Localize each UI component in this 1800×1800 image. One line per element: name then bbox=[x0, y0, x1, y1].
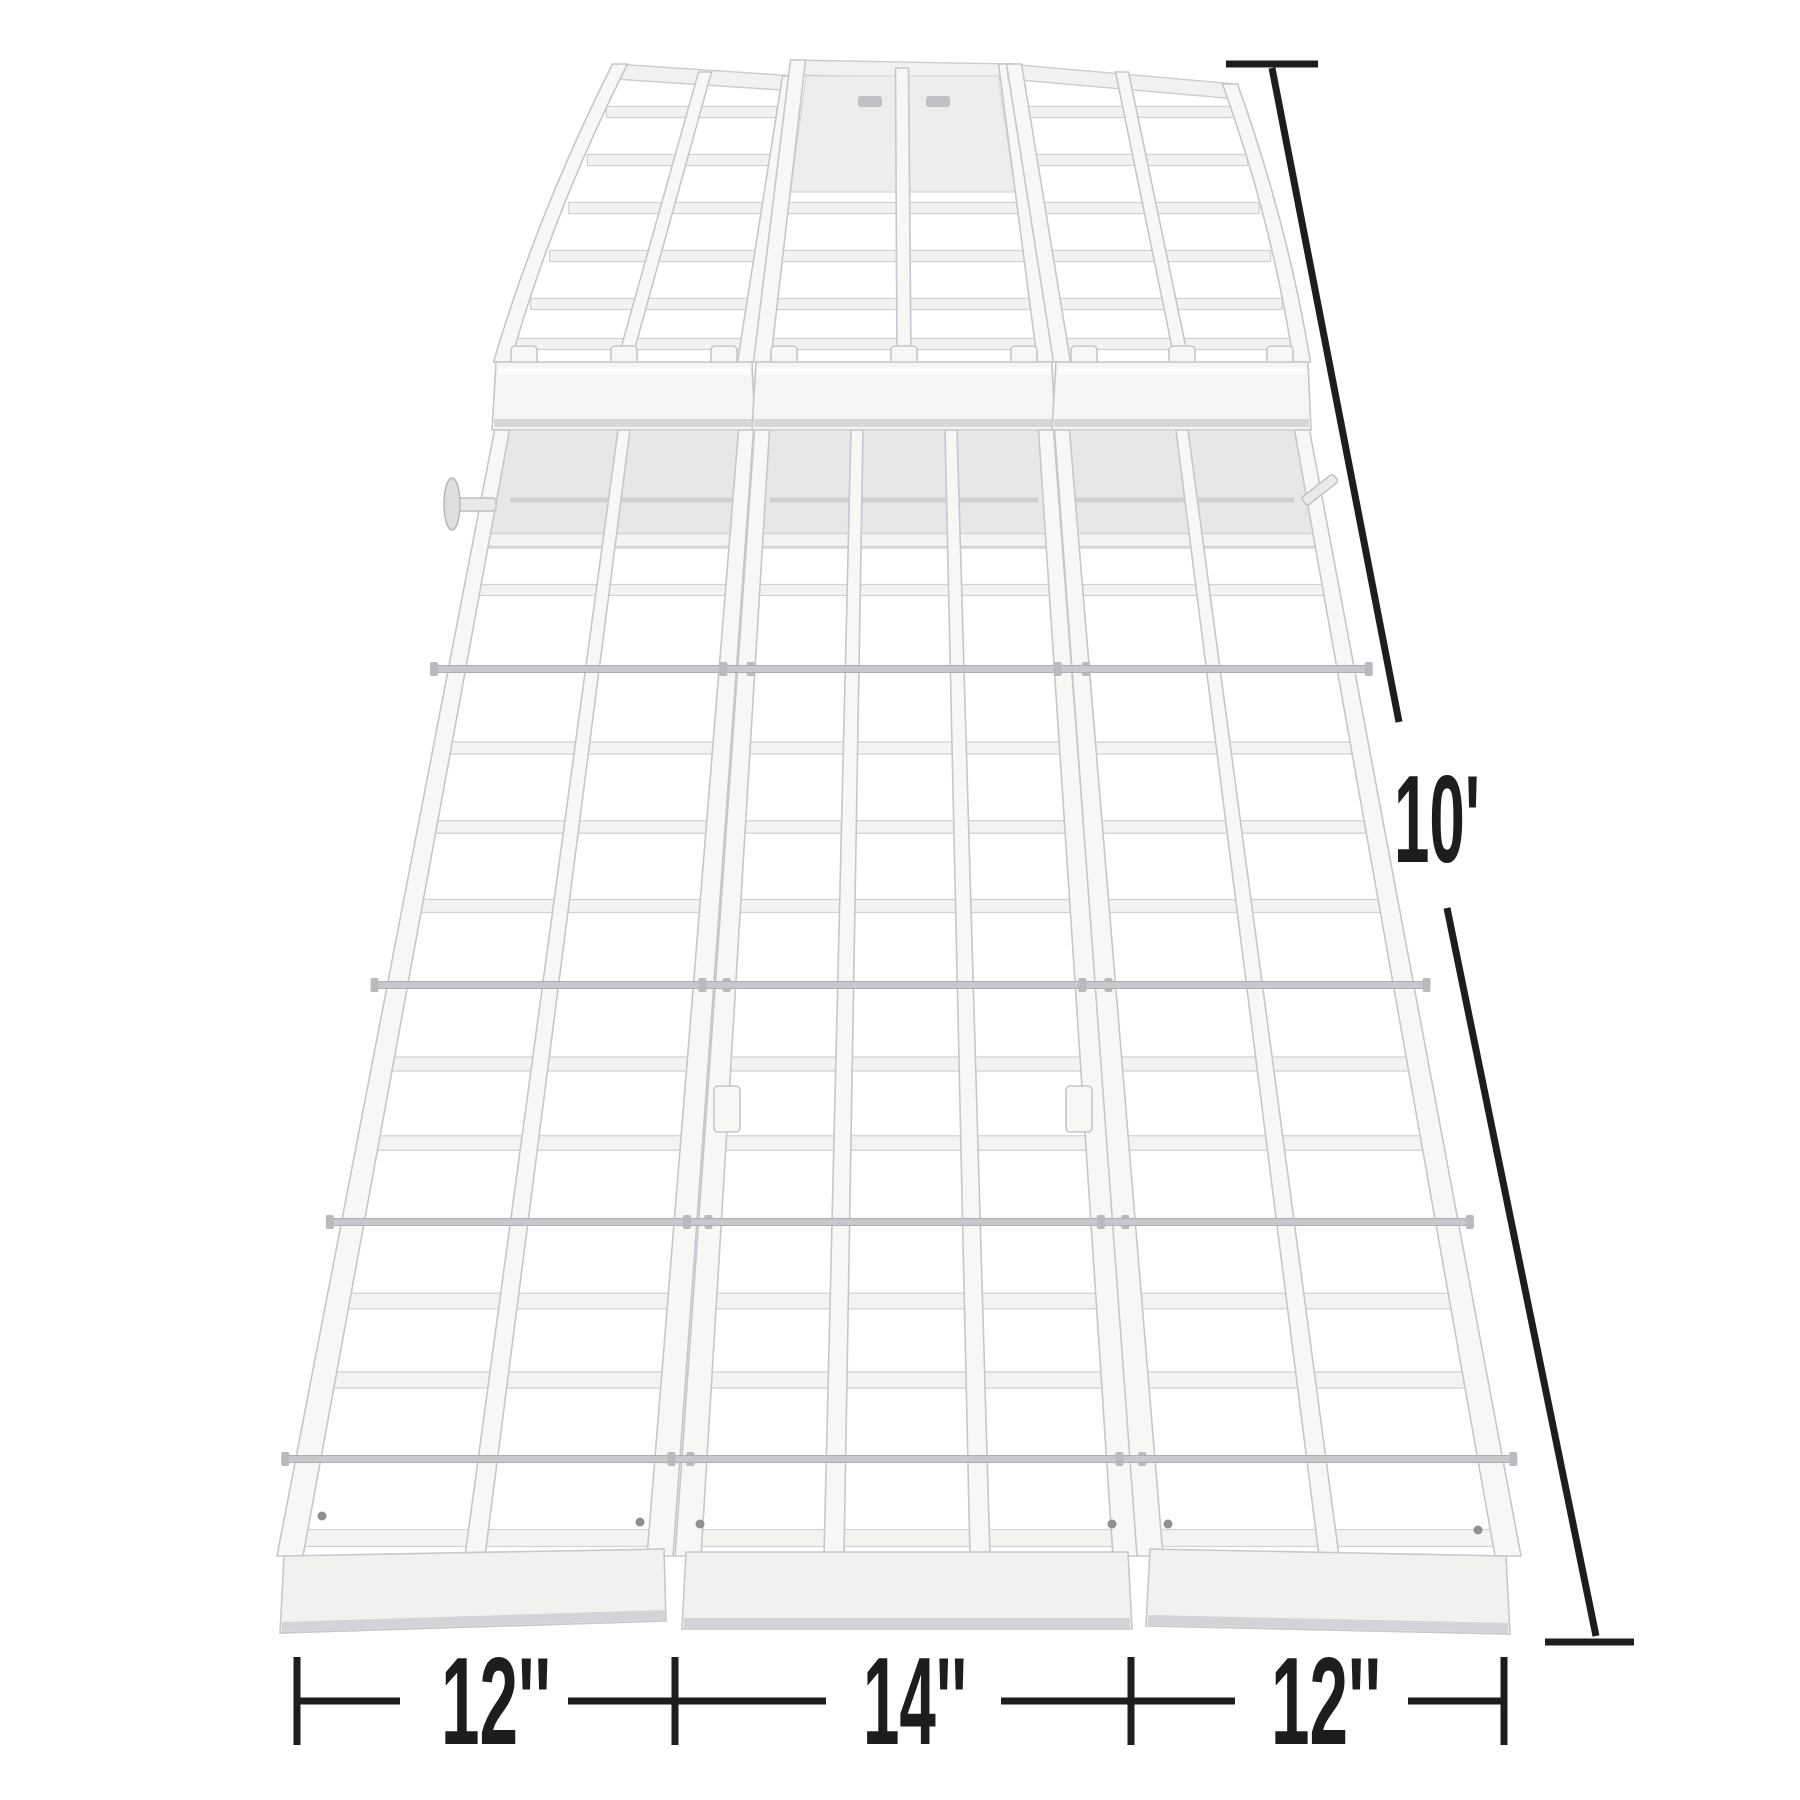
product-image: 10' 12'' 14'' 12'' bbox=[0, 0, 1800, 1800]
ramp-part bbox=[1081, 982, 1427, 989]
ramp-part bbox=[722, 1136, 1090, 1150]
ramp-part bbox=[858, 96, 882, 107]
ramp-part bbox=[686, 1219, 1126, 1226]
ramp-part bbox=[1365, 662, 1373, 676]
ramp-part bbox=[433, 666, 752, 673]
ramp-part bbox=[743, 821, 1067, 833]
ramp-part bbox=[498, 368, 750, 375]
ramp-part bbox=[1164, 1520, 1173, 1529]
ramp-part bbox=[670, 1456, 1143, 1463]
ramp-part bbox=[754, 419, 1053, 427]
ramp-part bbox=[727, 1057, 1084, 1071]
ramp-part bbox=[1066, 1086, 1092, 1132]
ramp-part bbox=[1108, 1520, 1117, 1529]
ramp-part bbox=[1078, 978, 1086, 992]
ramp-part bbox=[757, 534, 1052, 547]
width-dim-label-middle: 14'' bbox=[863, 1633, 967, 1771]
ramp-part bbox=[926, 96, 950, 107]
ramp-part bbox=[636, 1518, 645, 1527]
ramp-photo: 10' 12'' 14'' 12'' bbox=[0, 0, 1800, 1800]
ramp-part bbox=[683, 1215, 691, 1229]
ramp-part bbox=[326, 1215, 334, 1229]
ramp-part bbox=[1115, 1452, 1123, 1466]
width-dimension: 12'' 14'' 12'' bbox=[297, 1633, 1504, 1771]
height-dim-label: 10' bbox=[1394, 751, 1480, 889]
ramp-part bbox=[714, 1086, 740, 1132]
ramp-part bbox=[1474, 1526, 1483, 1535]
ramp-part bbox=[444, 478, 460, 530]
ramp-part bbox=[374, 982, 728, 989]
width-dim-label-left: 12'' bbox=[441, 1633, 551, 1771]
ramp-part bbox=[682, 1552, 1132, 1629]
ramp-part bbox=[719, 662, 727, 676]
width-dim-label-right: 12'' bbox=[1271, 1633, 1381, 1771]
ramp-part bbox=[281, 1452, 289, 1466]
ramp-part bbox=[1100, 1219, 1471, 1226]
ramp-part bbox=[699, 978, 707, 992]
ramp-part bbox=[510, 498, 738, 503]
ramp-part bbox=[696, 1520, 705, 1529]
ramp-part bbox=[494, 419, 753, 427]
ramp-illustration bbox=[277, 60, 1521, 1634]
ramp-part bbox=[1054, 419, 1309, 427]
ramp-part bbox=[748, 742, 1061, 754]
ramp-part bbox=[758, 585, 1050, 596]
ramp-part bbox=[1118, 1456, 1514, 1463]
ramp-part bbox=[1057, 666, 1370, 673]
ramp-part bbox=[284, 1456, 691, 1463]
height-dim-line-lower bbox=[1447, 908, 1596, 1636]
ramp-part bbox=[1054, 662, 1062, 676]
ramp-part bbox=[1466, 1215, 1474, 1229]
ramp-part bbox=[1070, 498, 1294, 503]
ramp-part bbox=[712, 1293, 1101, 1308]
ramp-part bbox=[722, 666, 1087, 673]
ramp-part bbox=[430, 662, 438, 676]
ramp-part bbox=[738, 900, 1073, 913]
ramp-part bbox=[1223, 84, 1311, 362]
ramp-part bbox=[702, 982, 1110, 989]
ramp-part bbox=[896, 68, 912, 362]
ramp-part bbox=[696, 1530, 1118, 1547]
ramp-part bbox=[318, 1512, 327, 1521]
ramp-part bbox=[1509, 1452, 1517, 1466]
ramp-part bbox=[329, 1219, 710, 1226]
ramp-part bbox=[758, 368, 1050, 375]
ramp-part bbox=[707, 1372, 1107, 1388]
ramp-part bbox=[371, 978, 379, 992]
ramp-part bbox=[749, 430, 1058, 548]
ramp-part bbox=[770, 498, 1038, 503]
ramp-part bbox=[1058, 368, 1306, 375]
ramp-part bbox=[667, 1452, 675, 1466]
ramp-part bbox=[1423, 978, 1431, 992]
ramp-part bbox=[1097, 1215, 1105, 1229]
